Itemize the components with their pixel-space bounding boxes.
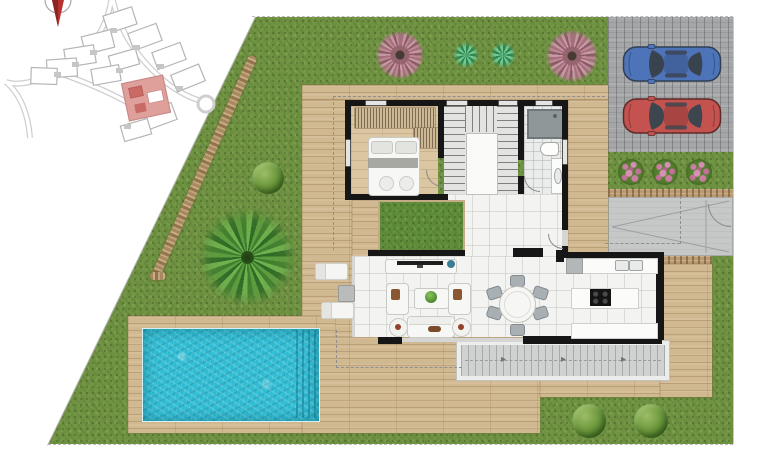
flower-bush-3 [686,159,712,185]
bed-pillow-right [395,141,417,154]
stair-flight-top [465,106,497,132]
overhang-line-entry-east [680,196,681,244]
lounger-side-table [338,285,355,302]
bed-blanket [368,158,418,168]
stair-flight-left [444,106,465,194]
window-north-2 [447,101,467,105]
stair-flight-right [497,106,518,194]
shower [527,109,564,139]
swimming-pool [142,328,320,422]
wall-living-south-west [378,337,402,344]
armchair-left-cushion [391,289,400,300]
overhang-line-entry-south [605,243,680,244]
shower-drain [553,114,557,118]
boundary-top [252,16,733,17]
wall-east-hall-upper [562,194,568,230]
round-bush-northwest [252,162,284,194]
wall-bathroom-west-upper [518,106,524,160]
site-plan-highlighted-unit [122,75,171,121]
window-bedroom-west [346,140,350,166]
wall-bathroom-west-lower [518,176,524,194]
window-north-4 [536,101,552,105]
wall-stairs-west [438,106,444,158]
round-bush-south-1 [572,404,606,438]
overhang-line-terrace-vert [336,330,337,368]
side-table-left-decor [395,324,401,330]
round-bush-south-2 [634,404,668,438]
deck-north [302,85,608,100]
decor-bowl [447,260,455,268]
washbasin [554,168,562,184]
sun-lounger-backrest [322,303,332,318]
kitchen-appliance [566,258,583,274]
kitchen-counter-bottom [571,323,658,339]
wall-pier-dining [513,248,543,257]
car-red [622,96,722,136]
dining-table [499,286,536,323]
sun-lounger-1 [315,263,348,280]
agave-plant-2 [489,41,517,69]
sofa-tray [428,326,441,332]
kitchen-sink-right [629,260,643,271]
deck-strip-courtyard-west [352,200,378,256]
overhang-line-west [333,97,334,250]
pink-flowering-tree-left [376,31,424,79]
side-table-right [452,318,471,337]
flower-bush-1 [618,159,644,185]
sofa-back-cushions [409,317,451,325]
sun-lounger-backrest [316,264,326,279]
pool-steps [296,330,317,418]
gravel-strip-top [608,189,733,197]
cooktop [590,289,611,306]
kitchen-sink-left [615,260,629,271]
bed-cushion-1 [379,176,394,191]
wardrobe [355,108,435,128]
bed-cushion-2 [399,176,414,191]
exterior-stairs: ▸ ▸ ▸ [456,340,670,381]
window-bathroom-east [563,140,567,164]
stair-direction-arrow: ▸ [501,355,506,365]
sliding-glass-south [402,338,523,342]
car-blue [622,44,722,84]
boundary-right [733,17,734,444]
window-north-1 [366,101,386,105]
dining-chair [510,324,525,336]
sun-lounger-2 [321,302,354,319]
overhang-line-terrace-horiz [336,367,462,368]
palm-tree-trunk [241,251,254,264]
overhang-line-north [333,96,605,97]
wall-living-north [368,250,465,256]
coffee-table-plant [425,291,437,303]
toilet [540,142,559,156]
north-arrow-icon [45,0,71,27]
inner-courtyard [378,200,465,252]
deck-east-of-house [568,100,608,256]
stair-void [466,133,498,195]
stone-garden-path-elbow [150,272,166,280]
agave-plant-1 [452,41,480,69]
side-table-left [389,318,408,337]
armchair-right-cushion [453,289,462,300]
dining-table-inner-ring [504,291,531,318]
site-key-plan [0,0,250,160]
stair-direction-arrow: ▸ [561,355,566,365]
tv-stand [417,265,423,268]
boundary-bottom [48,444,733,445]
stair-direction-arrow: ▸ [621,355,626,365]
pink-flowering-tree-right [546,30,598,82]
side-table-right-decor [458,324,464,330]
wall-pier-kitchen [556,250,564,262]
flower-bush-2 [652,159,678,185]
bed-pillow-left [371,141,393,154]
window-north-3 [499,101,517,105]
floor-plan-canvas: ▸ ▸ ▸ [0,0,770,460]
